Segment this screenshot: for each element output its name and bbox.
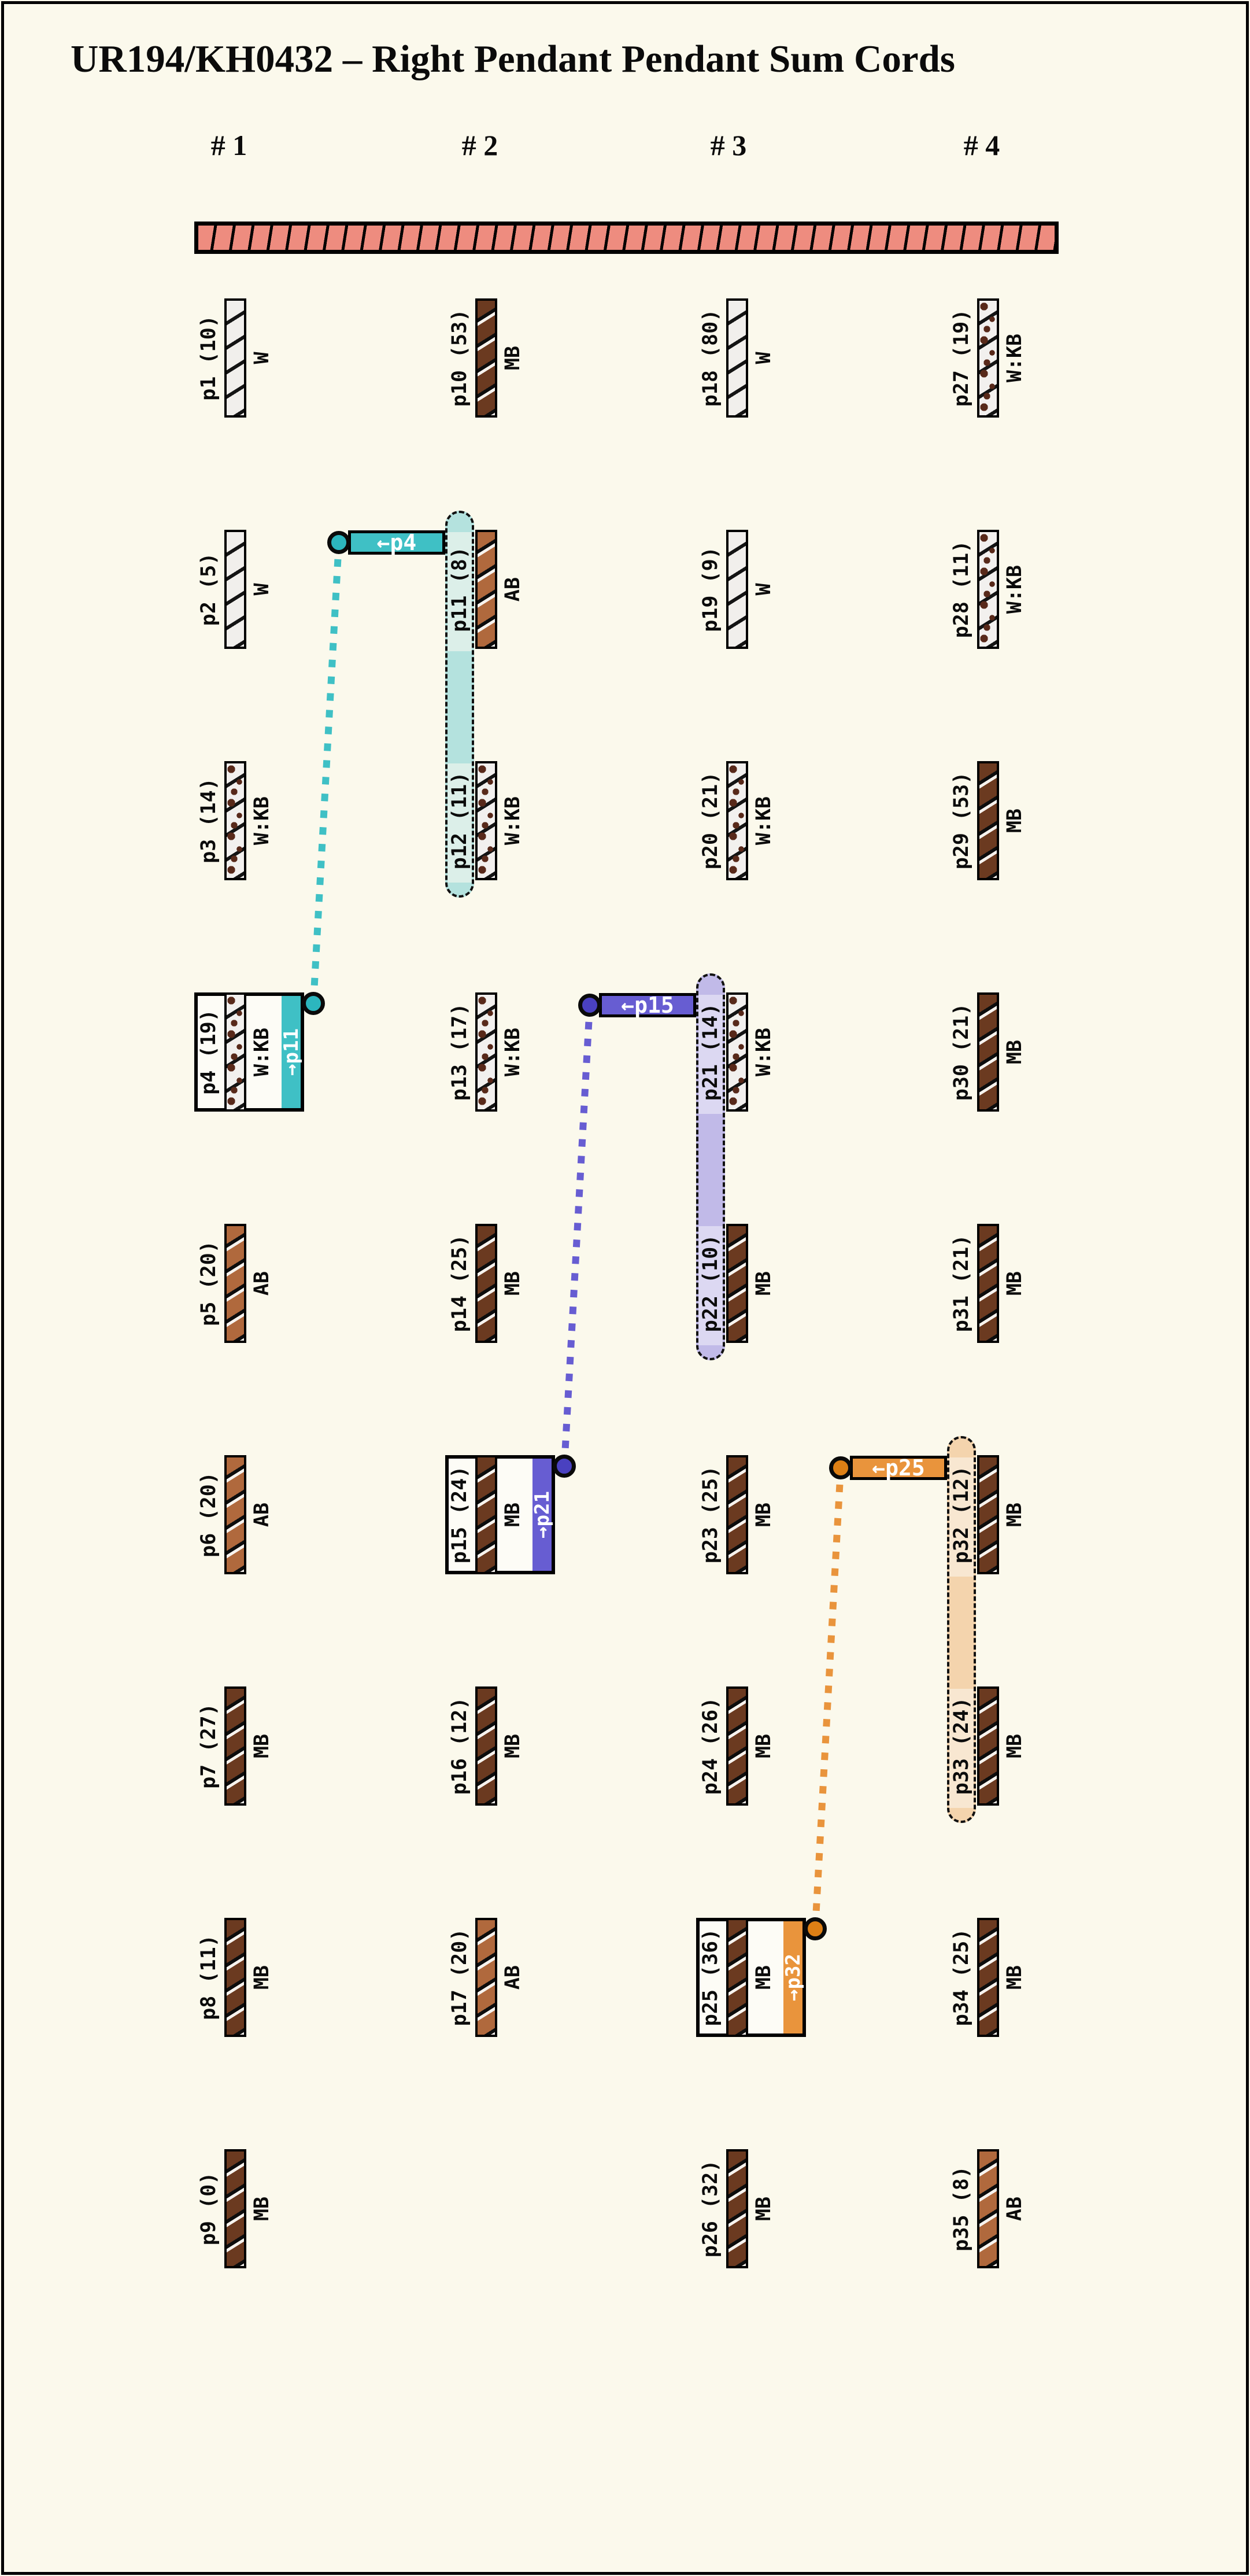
cord-bar-p22 bbox=[726, 1224, 748, 1343]
sum-connector-label: ←p25 bbox=[853, 1459, 944, 1477]
pendant-label-p3: p3 (14) bbox=[197, 761, 221, 880]
cord-bar-p21 bbox=[726, 992, 748, 1112]
pendant-label-p17: p17 (20) bbox=[448, 1918, 472, 2037]
pendant-label-p33: p33 (24) bbox=[949, 1686, 974, 1806]
sum-link-line-p15 bbox=[564, 1005, 590, 1466]
pendant-label-p23: p23 (25) bbox=[698, 1455, 723, 1574]
cord-bar-p10 bbox=[475, 298, 497, 418]
color-code-p31: MB bbox=[1003, 1224, 1027, 1343]
sum-link-bar-label-p4: →p11 bbox=[279, 992, 304, 1112]
color-code-p7: MB bbox=[250, 1686, 274, 1806]
pendant-label-p7: p7 (27) bbox=[197, 1686, 221, 1806]
pendant-label-p2: p2 (5) bbox=[197, 530, 221, 649]
cord-bar-p18 bbox=[726, 298, 748, 418]
color-code-p28: W:KB bbox=[1003, 530, 1027, 649]
cord-bar-p4 bbox=[224, 992, 246, 1112]
pendant-label-p24: p24 (26) bbox=[698, 1686, 723, 1806]
color-code-p3: W:KB bbox=[250, 761, 274, 880]
cord-bar-p8 bbox=[224, 1918, 246, 2037]
cord-bar-p20 bbox=[726, 761, 748, 880]
cord-bar-p2 bbox=[224, 530, 246, 649]
sum-connector-label: ←p4 bbox=[351, 533, 442, 552]
color-code-p35: AB bbox=[1003, 2149, 1027, 2268]
color-code-p27: W:KB bbox=[1003, 298, 1027, 418]
pendant-label-p31: p31 (21) bbox=[949, 1224, 974, 1343]
connector-endpoint-circle bbox=[302, 992, 325, 1015]
color-code-p26: MB bbox=[752, 2149, 776, 2268]
cord-bar-p23 bbox=[726, 1455, 748, 1574]
sum-link-line-p4 bbox=[313, 542, 339, 1003]
connector-endpoint-circle bbox=[804, 1917, 827, 1940]
cord-bar-p9 bbox=[224, 2149, 246, 2268]
color-code-p18: W bbox=[752, 298, 776, 418]
pendant-label-p22: p22 (10) bbox=[698, 1224, 723, 1343]
cord-bar-p12 bbox=[475, 761, 497, 880]
pendant-label-p26: p26 (32) bbox=[698, 2149, 723, 2268]
cord-bar-p14 bbox=[475, 1224, 497, 1343]
color-code-p9: MB bbox=[250, 2149, 274, 2268]
color-code-p24: MB bbox=[752, 1686, 776, 1806]
cord-bar-p29 bbox=[977, 761, 999, 880]
color-code-p5: AB bbox=[250, 1224, 274, 1343]
color-code-p13: W:KB bbox=[501, 992, 525, 1112]
pendant-label-p16: p16 (12) bbox=[448, 1686, 472, 1806]
cord-bar-p19 bbox=[726, 530, 748, 649]
pendant-label-p35: p35 (8) bbox=[949, 2149, 974, 2268]
cord-bar-p7 bbox=[224, 1686, 246, 1806]
cord-bar-p26 bbox=[726, 2149, 748, 2268]
sum-link-bar-label-p15: →p21 bbox=[530, 1455, 554, 1574]
pendant-label-p28: p28 (11) bbox=[949, 530, 974, 649]
color-code-p15: MB bbox=[501, 1455, 525, 1574]
connector-endpoint-circle bbox=[327, 531, 350, 554]
pendant-label-p15: p15 (24) bbox=[448, 1455, 472, 1574]
cord-bar-p31 bbox=[977, 1224, 999, 1343]
pendant-label-p18: p18 (80) bbox=[698, 298, 723, 418]
pendant-label-p21: p21 (14) bbox=[698, 992, 723, 1112]
connector-endpoint-circle bbox=[829, 1456, 852, 1479]
cord-bar-p1 bbox=[224, 298, 246, 418]
cord-bar-p25 bbox=[726, 1918, 748, 2037]
pendant-label-p13: p13 (17) bbox=[448, 992, 472, 1112]
pendant-label-p29: p29 (53) bbox=[949, 761, 974, 880]
color-code-p8: MB bbox=[250, 1918, 274, 2037]
color-code-p20: W:KB bbox=[752, 761, 776, 880]
cord-bar-p35 bbox=[977, 2149, 999, 2268]
color-code-p16: MB bbox=[501, 1686, 525, 1806]
pendant-label-p14: p14 (25) bbox=[448, 1224, 472, 1343]
pendant-label-p5: p5 (20) bbox=[197, 1224, 221, 1343]
sum-connector-label: ←p15 bbox=[602, 996, 693, 1014]
color-code-p30: MB bbox=[1003, 992, 1027, 1112]
color-code-p23: MB bbox=[752, 1455, 776, 1574]
pendant-label-p9: p9 (0) bbox=[197, 2149, 221, 2268]
cord-bar-p6 bbox=[224, 1455, 246, 1574]
cord-bar-p34 bbox=[977, 1918, 999, 2037]
pendant-label-p4: p4 (19) bbox=[197, 992, 221, 1112]
color-code-p25: MB bbox=[752, 1918, 776, 2037]
color-code-p2: W bbox=[250, 530, 274, 649]
cord-bar-p32 bbox=[977, 1455, 999, 1574]
pendant-label-p10: p10 (53) bbox=[448, 298, 472, 418]
cord-bar-p28 bbox=[977, 530, 999, 649]
cord-bar-p33 bbox=[977, 1686, 999, 1806]
pendant-label-p8: p8 (11) bbox=[197, 1918, 221, 2037]
pendant-label-p19: p19 (9) bbox=[698, 530, 723, 649]
color-code-p14: MB bbox=[501, 1224, 525, 1343]
color-code-p19: W bbox=[752, 530, 776, 649]
pendant-label-p30: p30 (21) bbox=[949, 992, 974, 1112]
cord-bar-p16 bbox=[475, 1686, 497, 1806]
cord-bar-p11 bbox=[475, 530, 497, 649]
connector-endpoint-circle bbox=[578, 994, 601, 1017]
pendant-label-p11: p11 (8) bbox=[448, 530, 472, 649]
cord-bar-p5 bbox=[224, 1224, 246, 1343]
cord-bar-p17 bbox=[475, 1918, 497, 2037]
khipu-diagram-canvas: { "title": "UR194/KH0432 – Right Pendant… bbox=[0, 0, 1250, 2576]
pendant-label-p34: p34 (25) bbox=[949, 1918, 974, 2037]
cord-bar-p3 bbox=[224, 761, 246, 880]
color-code-p12: W:KB bbox=[501, 761, 525, 880]
pendant-label-p25: p25 (36) bbox=[698, 1918, 723, 2037]
cord-bar-p30 bbox=[977, 992, 999, 1112]
cord-bar-p15 bbox=[475, 1455, 497, 1574]
color-code-p6: AB bbox=[250, 1455, 274, 1574]
connector-lines-layer bbox=[0, 0, 1250, 2576]
pendant-label-p1: p1 (10) bbox=[197, 298, 221, 418]
cord-bar-p13 bbox=[475, 992, 497, 1112]
cord-bar-p24 bbox=[726, 1686, 748, 1806]
sum-link-bar-label-p25: →p32 bbox=[781, 1918, 805, 2037]
color-code-p17: AB bbox=[501, 1918, 525, 2037]
color-code-p21: W:KB bbox=[752, 992, 776, 1112]
sum-connector-p4: ←p4 bbox=[348, 530, 445, 555]
sum-connector-p25: ←p25 bbox=[850, 1456, 947, 1480]
color-code-p4: W:KB bbox=[250, 992, 274, 1112]
pendant-label-p27: p27 (19) bbox=[949, 298, 974, 418]
cord-bar-p27 bbox=[977, 298, 999, 418]
color-code-p33: MB bbox=[1003, 1686, 1027, 1806]
color-code-p10: MB bbox=[501, 298, 525, 418]
color-code-p29: MB bbox=[1003, 761, 1027, 880]
sum-link-line-p25 bbox=[815, 1468, 841, 1929]
pendant-label-p12: p12 (11) bbox=[448, 761, 472, 880]
pendant-label-p32: p32 (12) bbox=[949, 1455, 974, 1574]
pendant-label-p20: p20 (21) bbox=[698, 761, 723, 880]
sum-connector-p15: ←p15 bbox=[599, 993, 696, 1017]
color-code-p32: MB bbox=[1003, 1455, 1027, 1574]
color-code-p1: W bbox=[250, 298, 274, 418]
connector-endpoint-circle bbox=[553, 1455, 576, 1478]
color-code-p22: MB bbox=[752, 1224, 776, 1343]
color-code-p11: AB bbox=[501, 530, 525, 649]
pendant-label-p6: p6 (20) bbox=[197, 1455, 221, 1574]
color-code-p34: MB bbox=[1003, 1918, 1027, 2037]
